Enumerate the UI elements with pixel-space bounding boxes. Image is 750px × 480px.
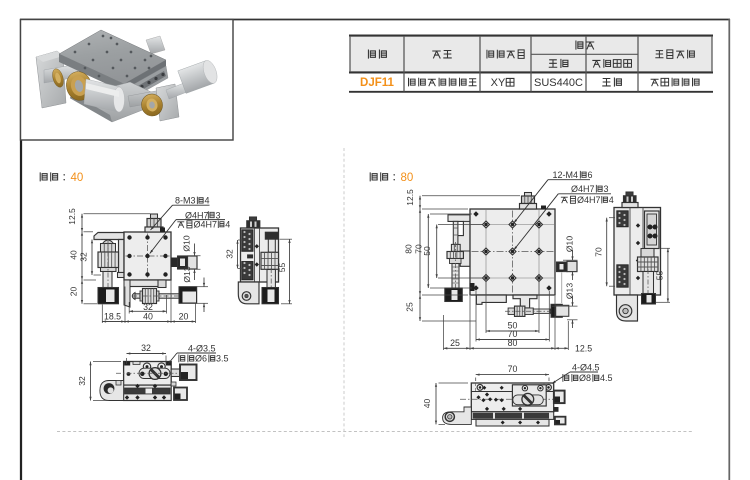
svg-text:Ø13: Ø13 xyxy=(565,283,575,299)
svg-text:80: 80 xyxy=(400,172,413,184)
svg-text:4: 4 xyxy=(609,195,614,205)
svg-text:12.5: 12.5 xyxy=(575,343,592,353)
svg-text:SUS440C: SUS440C xyxy=(534,77,583,89)
svg-text:6: 6 xyxy=(588,170,593,180)
svg-text:12-M4: 12-M4 xyxy=(553,170,579,180)
svg-text:Ø10: Ø10 xyxy=(565,236,575,252)
svg-text:32: 32 xyxy=(79,252,89,262)
svg-text:Ø8: Ø8 xyxy=(579,373,591,383)
svg-text:40: 40 xyxy=(69,250,79,260)
svg-text:20: 20 xyxy=(69,287,79,297)
svg-text:3.5: 3.5 xyxy=(216,354,229,364)
svg-text:70: 70 xyxy=(508,364,518,374)
svg-text:XY: XY xyxy=(491,77,506,89)
svg-text:DJF11: DJF11 xyxy=(360,77,394,89)
svg-text:32: 32 xyxy=(141,343,151,353)
svg-text:40: 40 xyxy=(422,399,432,409)
svg-text:Ø4H7: Ø4H7 xyxy=(194,219,218,229)
svg-text:25: 25 xyxy=(405,302,415,312)
svg-text:Ø10: Ø10 xyxy=(182,235,192,251)
svg-text:4.5: 4.5 xyxy=(600,373,613,383)
svg-text:32: 32 xyxy=(77,376,87,386)
svg-text:20: 20 xyxy=(179,312,189,322)
svg-text:80: 80 xyxy=(508,338,518,348)
svg-text:4-Ø4.5: 4-Ø4.5 xyxy=(572,363,600,373)
svg-text:32: 32 xyxy=(225,249,235,259)
svg-text:50: 50 xyxy=(422,246,432,256)
svg-text:25: 25 xyxy=(450,338,460,348)
svg-text:40: 40 xyxy=(143,312,153,322)
svg-text:8-M3: 8-M3 xyxy=(175,196,196,206)
svg-text:Ø13: Ø13 xyxy=(182,266,192,282)
svg-text:80: 80 xyxy=(404,244,414,254)
svg-text:18.5: 18.5 xyxy=(104,312,121,322)
svg-text:Ø4H7: Ø4H7 xyxy=(571,184,595,194)
svg-text:40: 40 xyxy=(70,172,83,184)
svg-text:55: 55 xyxy=(655,271,665,281)
svg-text:4: 4 xyxy=(205,196,210,206)
svg-text:3: 3 xyxy=(604,184,609,194)
svg-text:12.5: 12.5 xyxy=(67,208,77,225)
svg-text:4-Ø3.5: 4-Ø3.5 xyxy=(188,344,216,354)
svg-text:70: 70 xyxy=(594,247,604,257)
svg-text:4: 4 xyxy=(225,219,230,229)
svg-text:32: 32 xyxy=(143,302,153,312)
svg-text:55: 55 xyxy=(277,263,287,273)
svg-text:Ø6: Ø6 xyxy=(195,354,207,364)
svg-text:12.5: 12.5 xyxy=(405,189,415,206)
svg-text:Ø4H7: Ø4H7 xyxy=(577,195,601,205)
